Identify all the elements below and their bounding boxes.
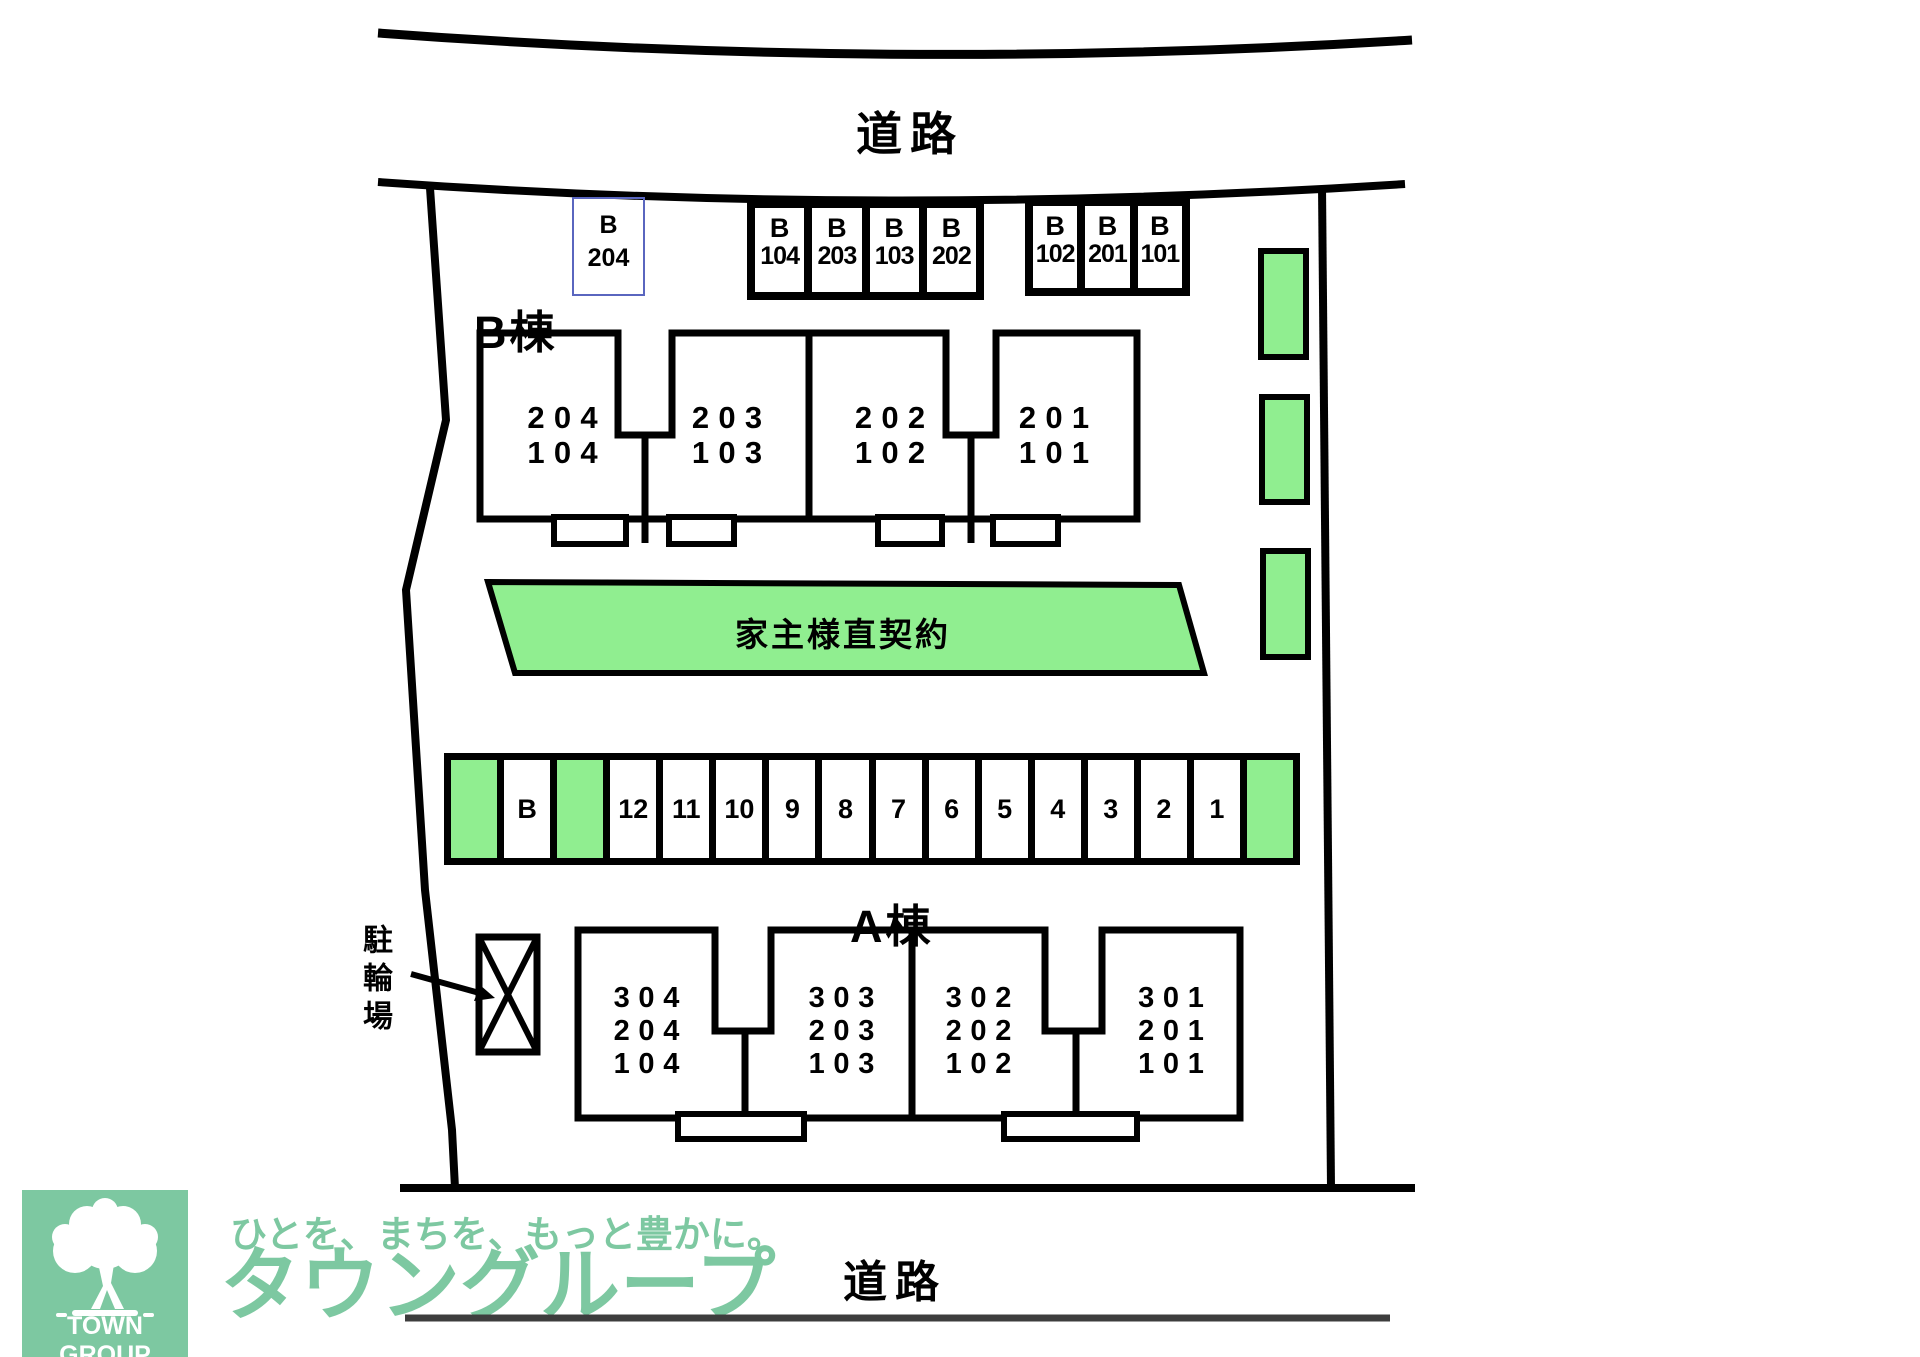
stall-label: 11 (672, 794, 701, 825)
stall-label: 9 (785, 794, 800, 825)
parking-stall: 1 (1194, 760, 1240, 858)
parking-stall: B 102 (1033, 206, 1077, 288)
unit-number: 103 (771, 1048, 912, 1081)
parking-stall: B (504, 760, 550, 858)
stall-label: 201 (1085, 240, 1129, 269)
unit-label: 303 203 103 (771, 982, 912, 1081)
brand-name: TOWN GROUP (22, 1312, 188, 1357)
unit-number: 302 (912, 982, 1045, 1015)
stall-label: 203 (812, 242, 861, 271)
unit-label: 304 204 104 (578, 982, 715, 1081)
parking-stall: 4 (1035, 760, 1081, 858)
stall-label: 7 (891, 794, 906, 825)
unit-number: 202 (809, 400, 971, 435)
parking-stall: B 101 (1138, 206, 1182, 288)
stall-label: B (1138, 212, 1182, 240)
stall-label: 3 (1103, 794, 1118, 825)
unit-number: 103 (645, 435, 809, 470)
unit-number: 102 (809, 435, 971, 470)
unit-label: 202 102 (809, 400, 971, 470)
parking-stall: B 104 (755, 208, 804, 292)
unit-number: 202 (912, 1015, 1045, 1048)
stall-label: B (574, 209, 643, 242)
unit-number: 102 (912, 1048, 1045, 1081)
parking-stall: B 103 (870, 208, 919, 292)
parking-stall: 8 (822, 760, 868, 858)
stall-label: B (812, 214, 861, 242)
parking-stall: 7 (876, 760, 922, 858)
site-plan: 道路 B 204 B 104 B 203 B 103 B 202 B 102 B (0, 0, 1920, 1357)
entrance-porch (669, 517, 734, 544)
parking-stall: 3 (1088, 760, 1134, 858)
unit-number: 303 (771, 982, 912, 1015)
entrance-porch (678, 1114, 804, 1139)
site-boundary-left (406, 188, 455, 1188)
unit-number: 203 (645, 400, 809, 435)
unit-number: 301 (1102, 982, 1240, 1015)
stall-label: 12 (618, 794, 648, 825)
parking-stall (557, 760, 603, 858)
stall-label: 5 (997, 794, 1012, 825)
parking-stall: 2 (1141, 760, 1187, 858)
green-space-rect (1261, 251, 1306, 357)
stall-label: 204 (574, 242, 643, 275)
stall-label: 202 (927, 242, 976, 271)
building-a-label: A棟 (850, 890, 934, 955)
green-space-rect (1262, 397, 1307, 502)
unit-number: 204 (578, 1015, 715, 1048)
road-edge-top (378, 33, 1412, 54)
site-boundary-right (1322, 186, 1331, 1188)
stall-label: B (870, 214, 919, 242)
parking-stall: 12 (610, 760, 656, 858)
stall-label: B (1033, 212, 1077, 240)
entrance-porch (878, 517, 942, 544)
highlighted-stall-b204: B 204 (572, 197, 645, 296)
road-label-top: 道路 (820, 98, 1000, 164)
stall-label: 10 (724, 794, 754, 825)
green-space-rect (1263, 551, 1308, 657)
road-label-bottom: 道路 (805, 1246, 985, 1310)
stall-label: B (755, 214, 804, 242)
company-title: タウングループ (220, 1246, 775, 1326)
stall-label: 103 (870, 242, 919, 271)
parking-row-middle: B 12 11 10 9 8 7 6 5 4 3 2 1 (444, 753, 1300, 865)
stall-label: 2 (1156, 794, 1171, 825)
parking-stall: B 201 (1085, 206, 1129, 288)
unit-number: 203 (771, 1015, 912, 1048)
building-b-label: B棟 (474, 296, 558, 361)
unit-number: 104 (578, 1048, 715, 1081)
unit-number: 104 (480, 435, 645, 470)
stall-label: 104 (755, 242, 804, 271)
parking-stall: B 203 (812, 208, 861, 292)
parking-stall: B 202 (927, 208, 976, 292)
stall-label: B (927, 214, 976, 242)
stall-label: 101 (1138, 240, 1182, 269)
stall-label: 8 (838, 794, 853, 825)
site-boundary-top (378, 182, 1405, 201)
entrance-porch (1004, 1114, 1137, 1139)
owner-strip-label: 家主様直契約 (688, 608, 998, 656)
parking-stall: 10 (716, 760, 762, 858)
stall-label: 102 (1033, 240, 1077, 269)
parking-stall: 6 (929, 760, 975, 858)
unit-label: 301 201 101 (1102, 982, 1240, 1081)
bicycle-parking-arrow (411, 974, 483, 994)
stall-label: 4 (1050, 794, 1065, 825)
parking-group-top-right: B 102 B 201 B 101 (1025, 198, 1190, 296)
unit-label: 204 104 (480, 400, 645, 470)
parking-stall: 5 (982, 760, 1028, 858)
parking-stall: 11 (663, 760, 709, 858)
entrance-porch (993, 517, 1058, 544)
unit-label: 201 101 (971, 400, 1137, 470)
unit-number: 201 (1102, 1015, 1240, 1048)
parking-stall: 9 (769, 760, 815, 858)
stall-label: 1 (1209, 794, 1224, 825)
parking-stall (1247, 760, 1293, 858)
bicycle-parking-label: 駐輪場 (352, 924, 396, 1038)
parking-stall (451, 760, 497, 858)
unit-number: 204 (480, 400, 645, 435)
stall-label: 6 (944, 794, 959, 825)
parking-group-top-left: B 104 B 203 B 103 B 202 (747, 200, 984, 300)
stall-label: B (517, 794, 537, 825)
unit-label: 203 103 (645, 400, 809, 470)
stall-label: B (1085, 212, 1129, 240)
town-group-logo: TOWN GROUP (22, 1190, 188, 1357)
unit-number: 101 (971, 435, 1137, 470)
unit-number: 201 (971, 400, 1137, 435)
entrance-porch (554, 517, 626, 544)
unit-label: 302 202 102 (912, 982, 1045, 1081)
unit-number: 304 (578, 982, 715, 1015)
unit-number: 101 (1102, 1048, 1240, 1081)
